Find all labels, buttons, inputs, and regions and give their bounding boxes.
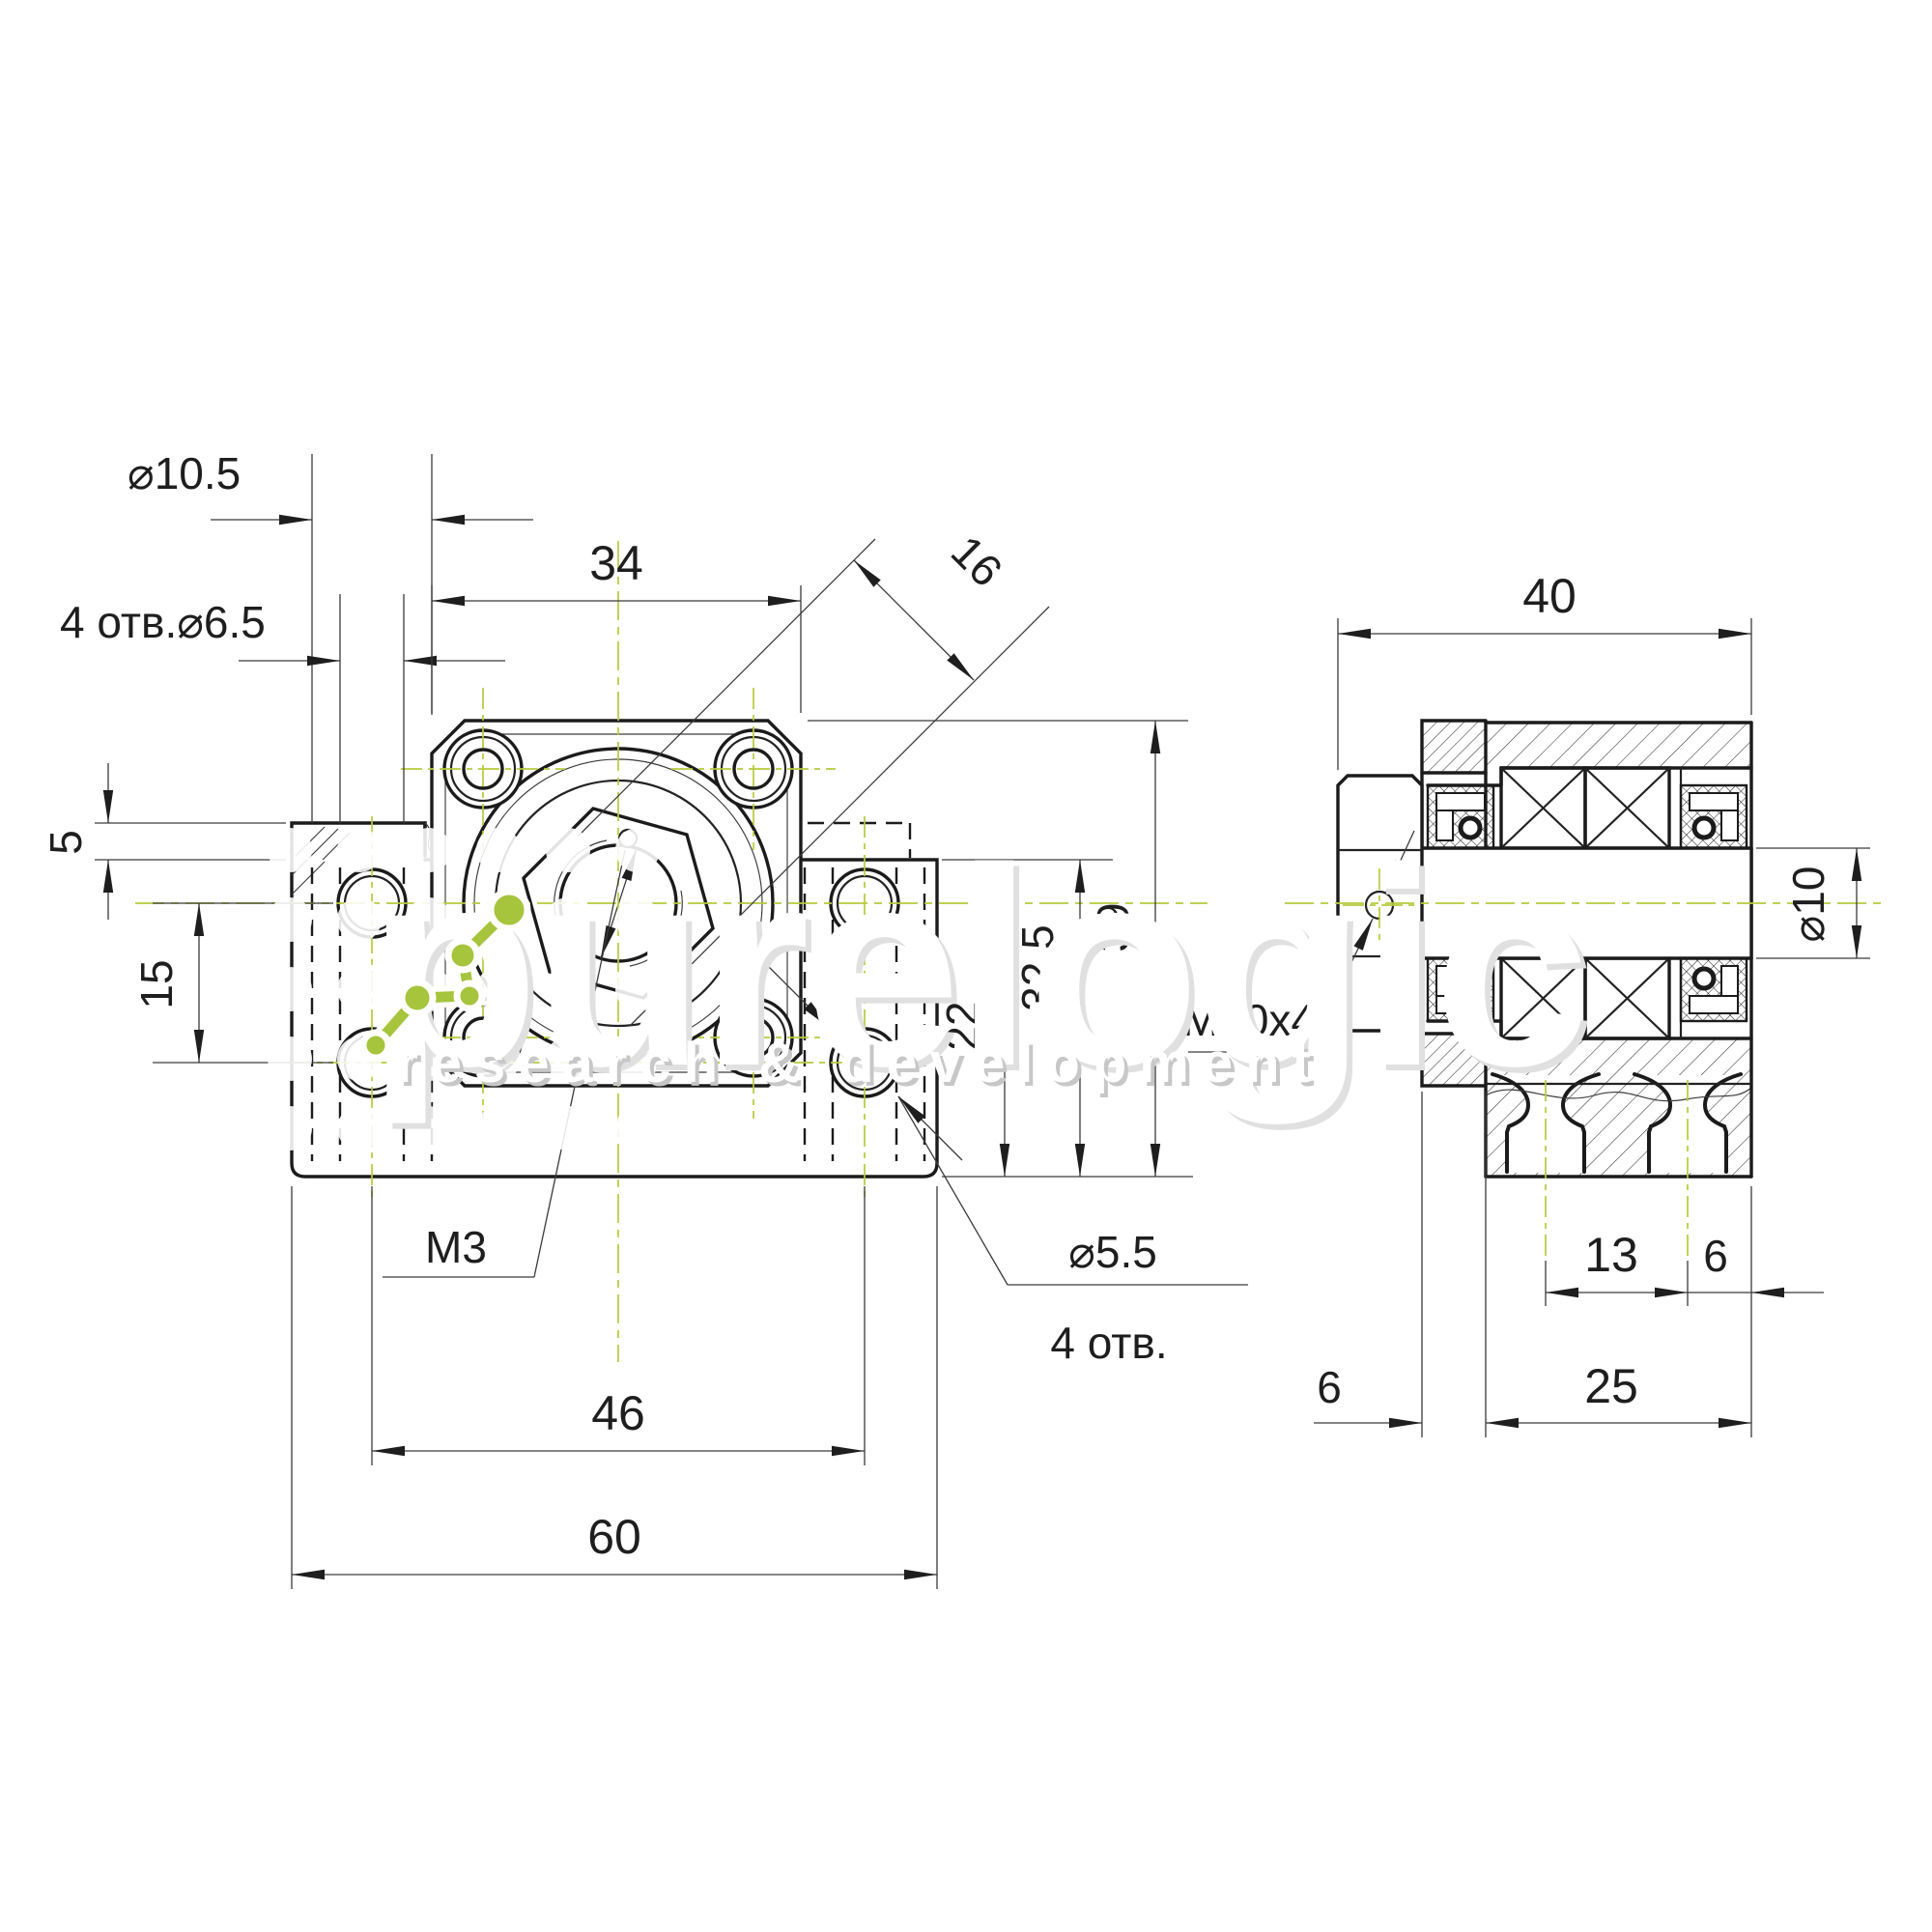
cad-drawing-canvas: ⌀10.5 4 отв.⌀6.5 34 16 5 xyxy=(0,0,1932,1932)
label-hole-pitch-vert: 15 xyxy=(131,959,182,1009)
label-step-height: 5 xyxy=(41,830,91,855)
label-base-width: 60 xyxy=(587,1510,641,1564)
label-slot-pitch: 13 xyxy=(1584,1228,1638,1282)
brand-tagline: research & development xyxy=(396,1032,1323,1094)
label-flange-width: 34 xyxy=(589,536,643,590)
label-flange-thickness: 6 xyxy=(1317,1362,1342,1412)
housing-top-wall xyxy=(1486,723,1751,768)
dim-34: 34 xyxy=(432,536,801,713)
drawing-page: ⌀10.5 4 отв.⌀6.5 34 16 5 xyxy=(0,0,1932,1932)
label-shaft-dia: ⌀10 xyxy=(1783,867,1833,943)
label-dia-face-holes: ⌀5.5 xyxy=(1068,1227,1157,1277)
label-slot-to-face: 6 xyxy=(1703,1231,1728,1281)
label-hole-pitch-horiz: 46 xyxy=(591,1386,645,1440)
watermark: purelogic purelogic research & developme… xyxy=(268,810,1590,1151)
label-total-depth: 40 xyxy=(1522,569,1577,623)
label-set-screw: M3 xyxy=(425,1222,487,1272)
label-nut-flats: 16 xyxy=(942,526,1012,596)
label-base-holes: 4 отв.⌀6.5 xyxy=(60,597,266,647)
label-face-holes-count: 4 отв. xyxy=(1050,1318,1167,1368)
dim-5: 5 xyxy=(41,763,286,920)
label-body-depth: 25 xyxy=(1584,1359,1638,1413)
label-dia-counterbore: ⌀10.5 xyxy=(128,448,241,498)
